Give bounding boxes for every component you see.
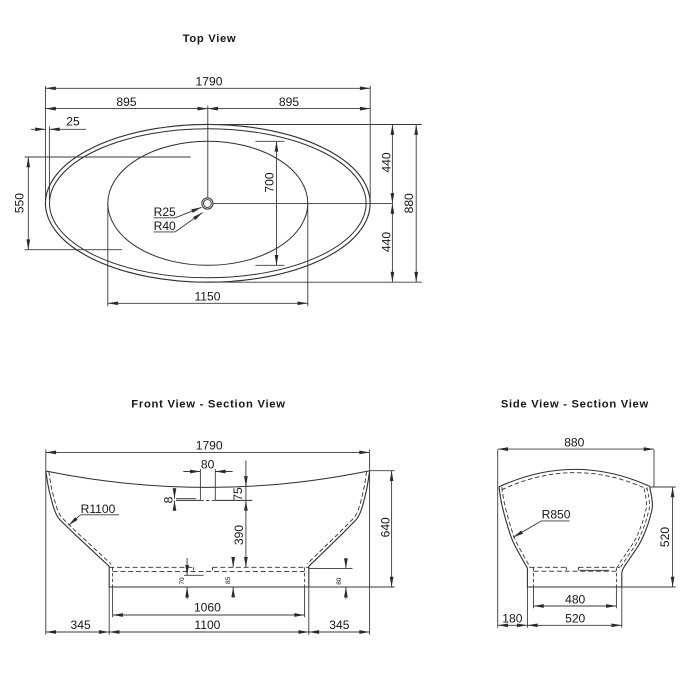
svg-text:480: 480 (565, 592, 585, 606)
svg-text:Side View - Section View: Side View - Section View (501, 399, 649, 411)
svg-text:1790: 1790 (196, 75, 223, 89)
svg-text:440: 440 (380, 152, 394, 172)
svg-text:880: 880 (402, 193, 416, 213)
svg-text:Top View: Top View (183, 33, 237, 45)
svg-text:80: 80 (336, 577, 343, 585)
svg-text:25: 25 (66, 114, 80, 128)
svg-text:R25: R25 (154, 205, 176, 219)
svg-text:345: 345 (71, 618, 91, 632)
svg-text:70: 70 (179, 577, 186, 585)
svg-text:1060: 1060 (194, 601, 221, 615)
svg-text:R850: R850 (542, 508, 571, 522)
svg-text:520: 520 (658, 527, 672, 547)
svg-text:R40: R40 (154, 219, 176, 233)
svg-text:1150: 1150 (194, 290, 220, 304)
svg-text:R1100: R1100 (81, 502, 116, 516)
svg-text:180: 180 (502, 612, 522, 626)
svg-text:640: 640 (379, 517, 393, 537)
svg-text:880: 880 (564, 436, 584, 450)
svg-text:550: 550 (12, 193, 26, 213)
svg-text:520: 520 (565, 612, 585, 626)
svg-text:345: 345 (329, 618, 349, 632)
svg-text:700: 700 (263, 172, 277, 192)
svg-text:1100: 1100 (194, 618, 220, 632)
svg-text:75: 75 (231, 487, 245, 501)
svg-text:80: 80 (201, 458, 215, 472)
svg-text:85: 85 (225, 576, 232, 584)
svg-text:8: 8 (161, 496, 175, 503)
svg-text:1790: 1790 (196, 439, 223, 453)
svg-text:Front View - Section View: Front View - Section View (131, 399, 285, 411)
svg-text:440: 440 (380, 232, 394, 252)
svg-text:390: 390 (232, 525, 246, 545)
svg-text:895: 895 (279, 95, 299, 109)
svg-text:895: 895 (116, 95, 136, 109)
